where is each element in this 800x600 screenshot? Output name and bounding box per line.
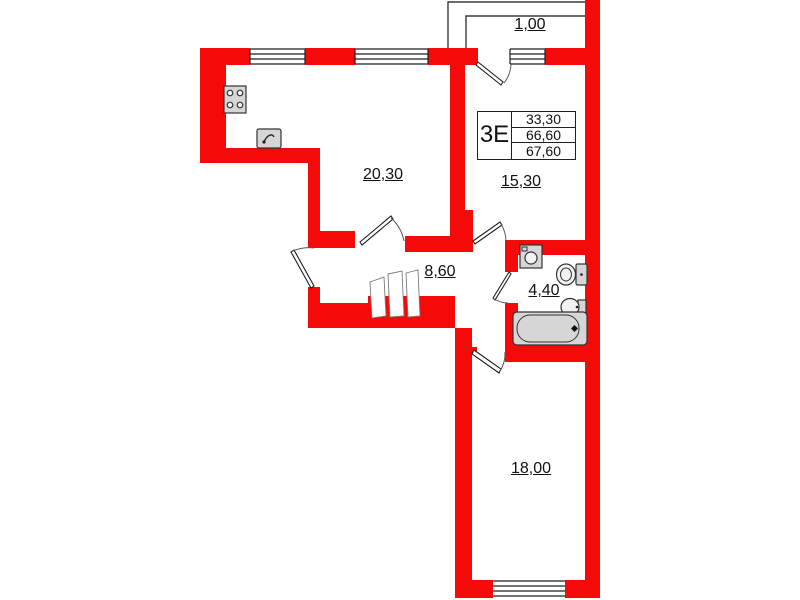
window-icon: [355, 49, 428, 64]
door-swing-icon: [472, 350, 505, 373]
toilet-icon: [557, 264, 588, 285]
wall-segment: [505, 345, 600, 362]
floor-area-value: 66,60: [512, 128, 575, 144]
area-label-balcony: 1,00: [514, 16, 545, 34]
living-area-value: 33,30: [512, 112, 575, 128]
wall-segment: [200, 48, 226, 163]
window-icon: [493, 581, 565, 596]
window-icon: [250, 49, 305, 64]
door-swing-icon: [473, 222, 506, 244]
wall-segment: [455, 580, 493, 598]
wall-segment: [455, 328, 472, 598]
stove-icon: [224, 86, 246, 113]
total-area-value: 67,60: [512, 143, 575, 159]
door-swing-icon: [476, 62, 511, 85]
area-label-kitchen-living: 20,30: [363, 166, 403, 184]
washing-machine-icon: [520, 245, 542, 268]
bathtub-icon: [513, 312, 587, 345]
area-label-bathroom: 4,40: [528, 282, 559, 300]
apartment-type-label: 3Е: [478, 112, 512, 159]
apartment-info-table: 3Е 33,30 66,60 67,60: [477, 111, 576, 160]
wall-segment: [455, 210, 473, 243]
floor-plan: 1,00 20,30 15,30 8,60 4,40 18,00 3Е 33,3…: [0, 0, 800, 600]
window-icon: [510, 49, 545, 64]
door-swing-icon: [291, 248, 314, 288]
wall-segment: [505, 240, 518, 272]
area-label-bedroom-bottom: 18,00: [511, 460, 551, 478]
wall-segment: [308, 231, 355, 248]
door-swing-icon: [493, 272, 511, 303]
area-label-hallway: 8,60: [424, 263, 455, 281]
wall-segment: [585, 0, 600, 598]
area-label-bedroom-top: 15,30: [501, 173, 541, 191]
wall-segment: [305, 48, 355, 65]
floor-plan-canvas: [0, 0, 800, 600]
door-swing-icon: [360, 216, 404, 245]
wall-segment: [428, 48, 478, 65]
wall-segment: [200, 148, 320, 163]
kitchen-sink-icon: [257, 129, 281, 148]
wall-segment: [505, 240, 600, 255]
wardrobe-icon: [370, 270, 420, 318]
